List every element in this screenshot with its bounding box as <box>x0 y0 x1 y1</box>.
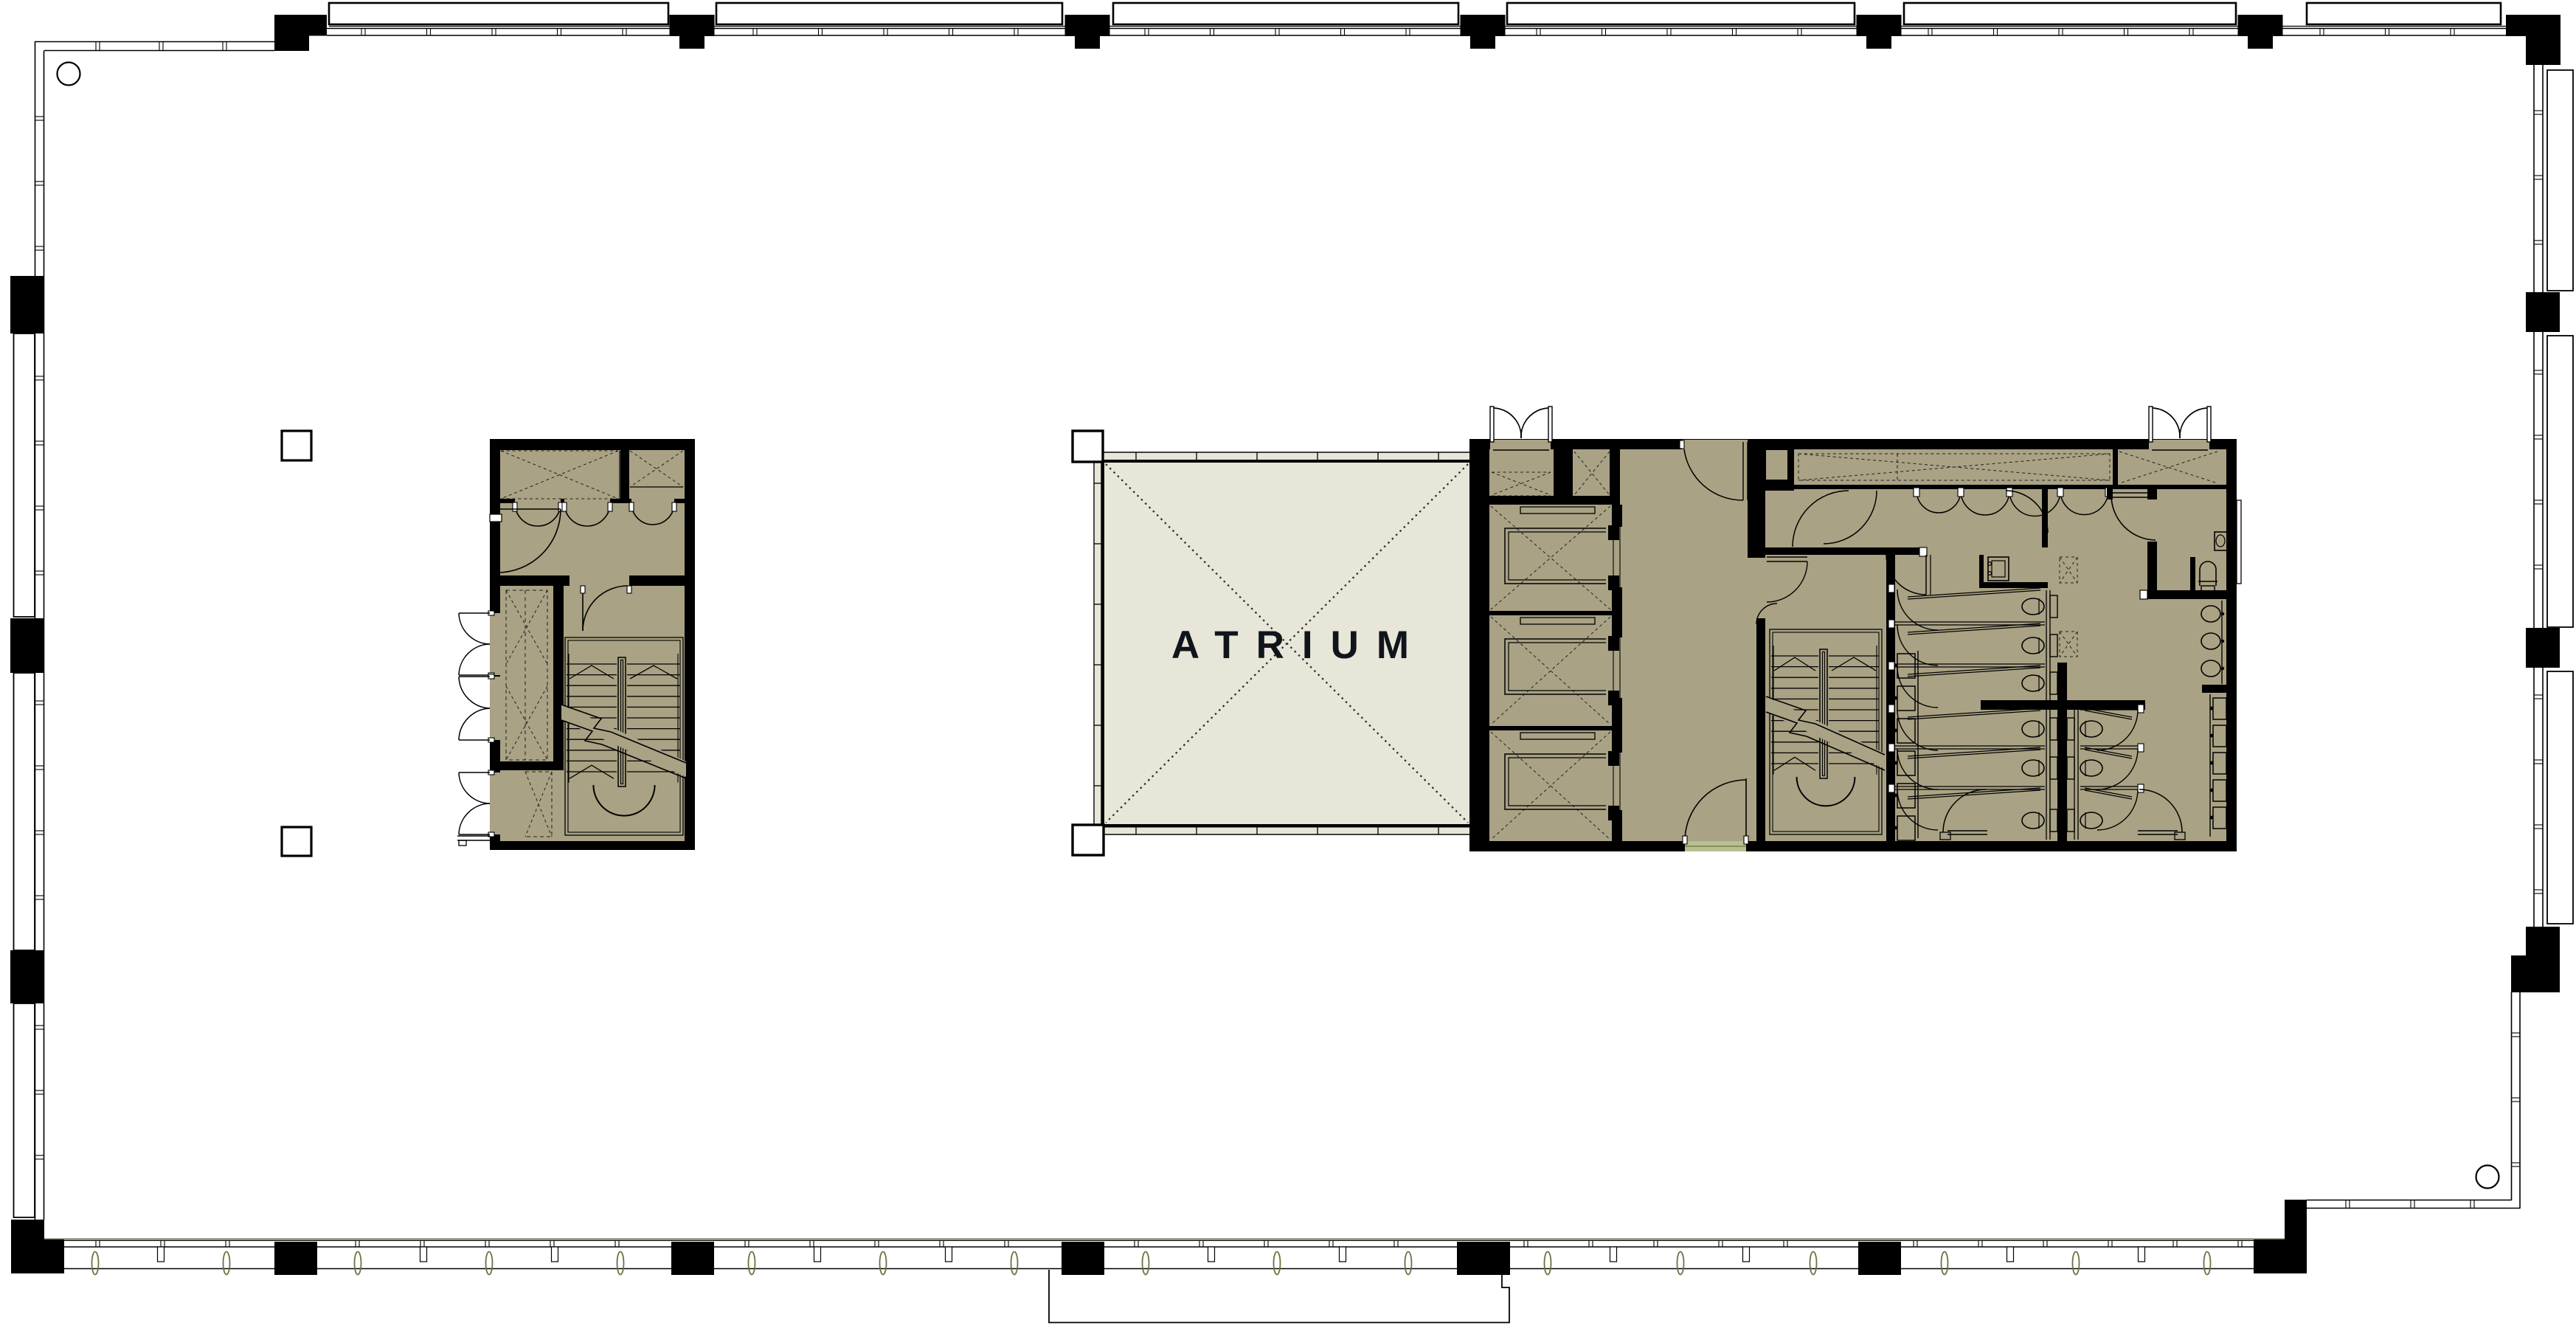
svg-text:ATRIUM: ATRIUM <box>1171 623 1427 667</box>
